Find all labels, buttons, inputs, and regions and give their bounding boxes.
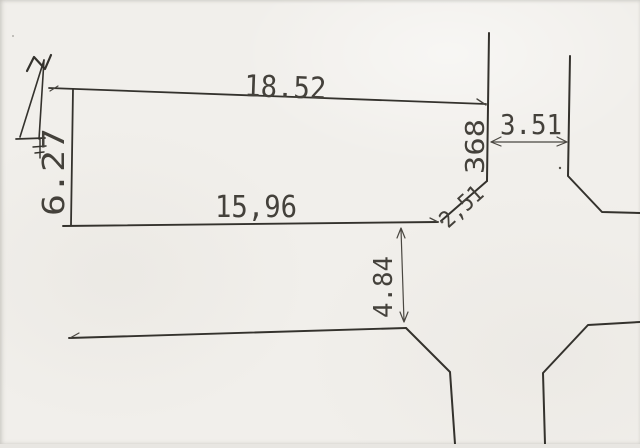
label-road-offset-bottom: 4.84 <box>369 256 399 318</box>
road-edge-left <box>69 328 406 338</box>
label-street-width-right: 3.51 <box>500 108 562 141</box>
survey-drawing: 18.52 15,96 6.27 3.51 368 2,51 4.84 <box>0 0 640 444</box>
scanned-survey-sketch: 18.52 15,96 6.27 3.51 368 2,51 4.84 <box>0 0 640 444</box>
label-corner-cut: 2,51 <box>435 181 490 234</box>
label-parcel-top-edge: 18.52 <box>244 69 327 107</box>
label-street-frontage: 368 <box>461 119 491 174</box>
label-parcel-bottom-edge: 15,96 <box>215 190 297 225</box>
road-corner-left <box>406 328 455 444</box>
street-edge-right <box>568 56 640 213</box>
label-parcel-left-edge: 6.27 <box>37 128 72 216</box>
road-corner-right <box>543 322 640 444</box>
scan-speck <box>559 167 561 169</box>
road-edges-bottom <box>69 322 640 444</box>
scan-speck <box>12 35 14 37</box>
